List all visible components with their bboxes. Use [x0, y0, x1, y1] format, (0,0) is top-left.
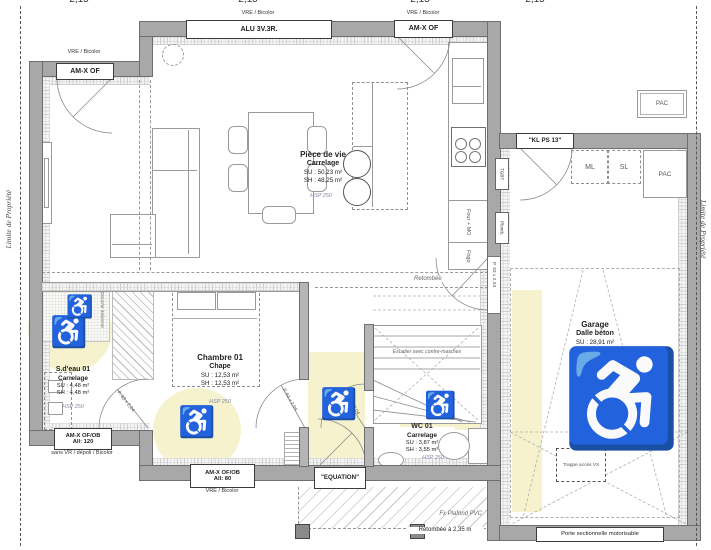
crawl-space-hatch-label: Trappe accès VS [563, 463, 600, 468]
dimension-label: 2,15 [405, 0, 435, 5]
property-limit-label-right: Limite de Propriété [699, 200, 708, 258]
room-sh: SH : 12,53 m² [182, 380, 258, 388]
property-limit-label-left: Limite de Propriété [4, 190, 13, 248]
porch-post [295, 524, 310, 539]
window-bedroom: AM-X OF/OB All: 80 [190, 464, 255, 488]
window-note: VRE / Bicolor [196, 489, 248, 495]
floor-plan: 2,15 2,15 2,15 2,15 Limite de Propriété … [0, 0, 711, 550]
plumbing-manifold-label: Plomb. [500, 221, 505, 235]
room-name: Pièce de vie [278, 150, 368, 160]
wheelchair-icon: ♿ [562, 352, 680, 447]
window-label: AM-X OF [409, 25, 439, 33]
room-hsp-living: HSP 250 [296, 193, 346, 199]
room-label-wc: WC 01 Carrelage SU : 3,87 m² SH : 3,55 m… [394, 423, 450, 454]
garage-side-door-label: "KL PS 13" [529, 138, 562, 145]
interior-wall [42, 283, 308, 291]
room-su: SU : 12,53 m² [182, 372, 258, 380]
room-name: Garage [552, 320, 638, 330]
property-line-right [696, 6, 697, 546]
room-name: WC 01 [394, 423, 450, 432]
wheelchair-icon: ♿ [66, 296, 93, 318]
garage-side-door: "KL PS 13" [516, 133, 574, 149]
window-sill-label: All: 80 [214, 476, 231, 482]
room-floor: Dalle béton [552, 330, 638, 339]
wall [30, 62, 42, 445]
window-sill-label: All: 120 [73, 439, 94, 445]
dimension-label: 2,15 [520, 0, 550, 5]
room-name: Chambre 01 [182, 353, 258, 363]
room-floor: Carrelage [42, 375, 104, 383]
electrical-panel-label: TGBT [500, 168, 505, 180]
electrical-panel: TGBT [495, 158, 509, 190]
window-top-main: ALU 3V.3R. [186, 20, 332, 39]
room-floor: Carrelage [394, 432, 450, 440]
window-label: AM-X OF [70, 68, 100, 76]
wheelchair-icon: ♿ [320, 390, 357, 420]
window-note: VRE / Bicolor [222, 11, 294, 17]
wheelchair-icon: ♿ [424, 392, 456, 418]
interior-wall [300, 428, 308, 466]
plumbing-manifold: Plomb. [495, 212, 509, 244]
interior-wall [365, 325, 373, 390]
garage-access-door-label: P. 83 x 2,04 [490, 262, 495, 287]
room-label-bedroom: Chambre 01 Chape SU : 12,53 m² SH : 12,5… [182, 353, 258, 387]
wheelchair-icon: ♿ [50, 318, 87, 348]
wheelchair-icon: ♿ [178, 408, 215, 438]
entry-door-label: "EQUATION" [321, 475, 359, 482]
window-label: ALU 3V.3R. [240, 26, 277, 34]
room-sh: SH : 48,25 m² [278, 177, 368, 185]
room-label-garage: Garage Dalle béton SU : 28,91 m² [552, 320, 638, 347]
window-top-left: AM-X OF [56, 63, 114, 80]
dimension-label: 2,15 [64, 0, 94, 5]
property-line-left [20, 6, 21, 546]
room-sh: SH : 4,48 m² [42, 390, 104, 397]
garage-main-door: Porte sectionnelle motorisable [536, 527, 664, 542]
room-hsp-wc: HSP 250 [408, 455, 458, 461]
dimension-label: 2,15 [233, 0, 263, 5]
room-hsp-bedroom: HSP 250 [195, 399, 245, 405]
porch-ceiling-note: Fx Plafond PVC [408, 511, 482, 517]
entry-door: "EQUATION" [314, 467, 366, 489]
shower-label: Douche italienne [98, 292, 103, 328]
room-su: SU : 50,23 m² [278, 169, 368, 177]
garage-main-door-label: Porte sectionnelle motorisable [561, 531, 639, 537]
garage-wall [688, 134, 700, 540]
room-su: SU : 3,87 m² [394, 440, 450, 447]
room-floor: Carrelage [278, 160, 368, 169]
window-note: VRE / Bicolor [52, 50, 116, 56]
room-floor: Chape [182, 363, 258, 372]
interior-wall [365, 428, 373, 466]
beam-label: Retombée [412, 276, 444, 282]
room-sh: SH : 3,55 m² [394, 447, 450, 454]
window-note: sans VR / dépoli / Bicolor [42, 451, 122, 457]
porch-beam-note: Retombée à 2,35 m [406, 527, 484, 534]
room-name: S.d'eau 01 [42, 366, 104, 375]
room-label-living: Pièce de vie Carrelage SU : 50,23 m² SH … [278, 150, 368, 184]
room-hsp-bathroom: HSP 250 [48, 404, 98, 410]
window-bathroom: AM-X OF/OB All: 120 [54, 428, 112, 450]
window-top-right: AM-X OF [394, 20, 453, 38]
stairs-note: Escalier avec contre-marches [376, 350, 478, 355]
window-note: VRE / Bicolor [392, 11, 454, 17]
interior-wall [300, 283, 308, 379]
crawl-space-hatch: Trappe accès VS [556, 448, 606, 482]
room-su: SU : 4,48 m² [42, 383, 104, 390]
room-label-bathroom: S.d'eau 01 Carrelage SU : 4,48 m² SH : 4… [42, 366, 104, 397]
